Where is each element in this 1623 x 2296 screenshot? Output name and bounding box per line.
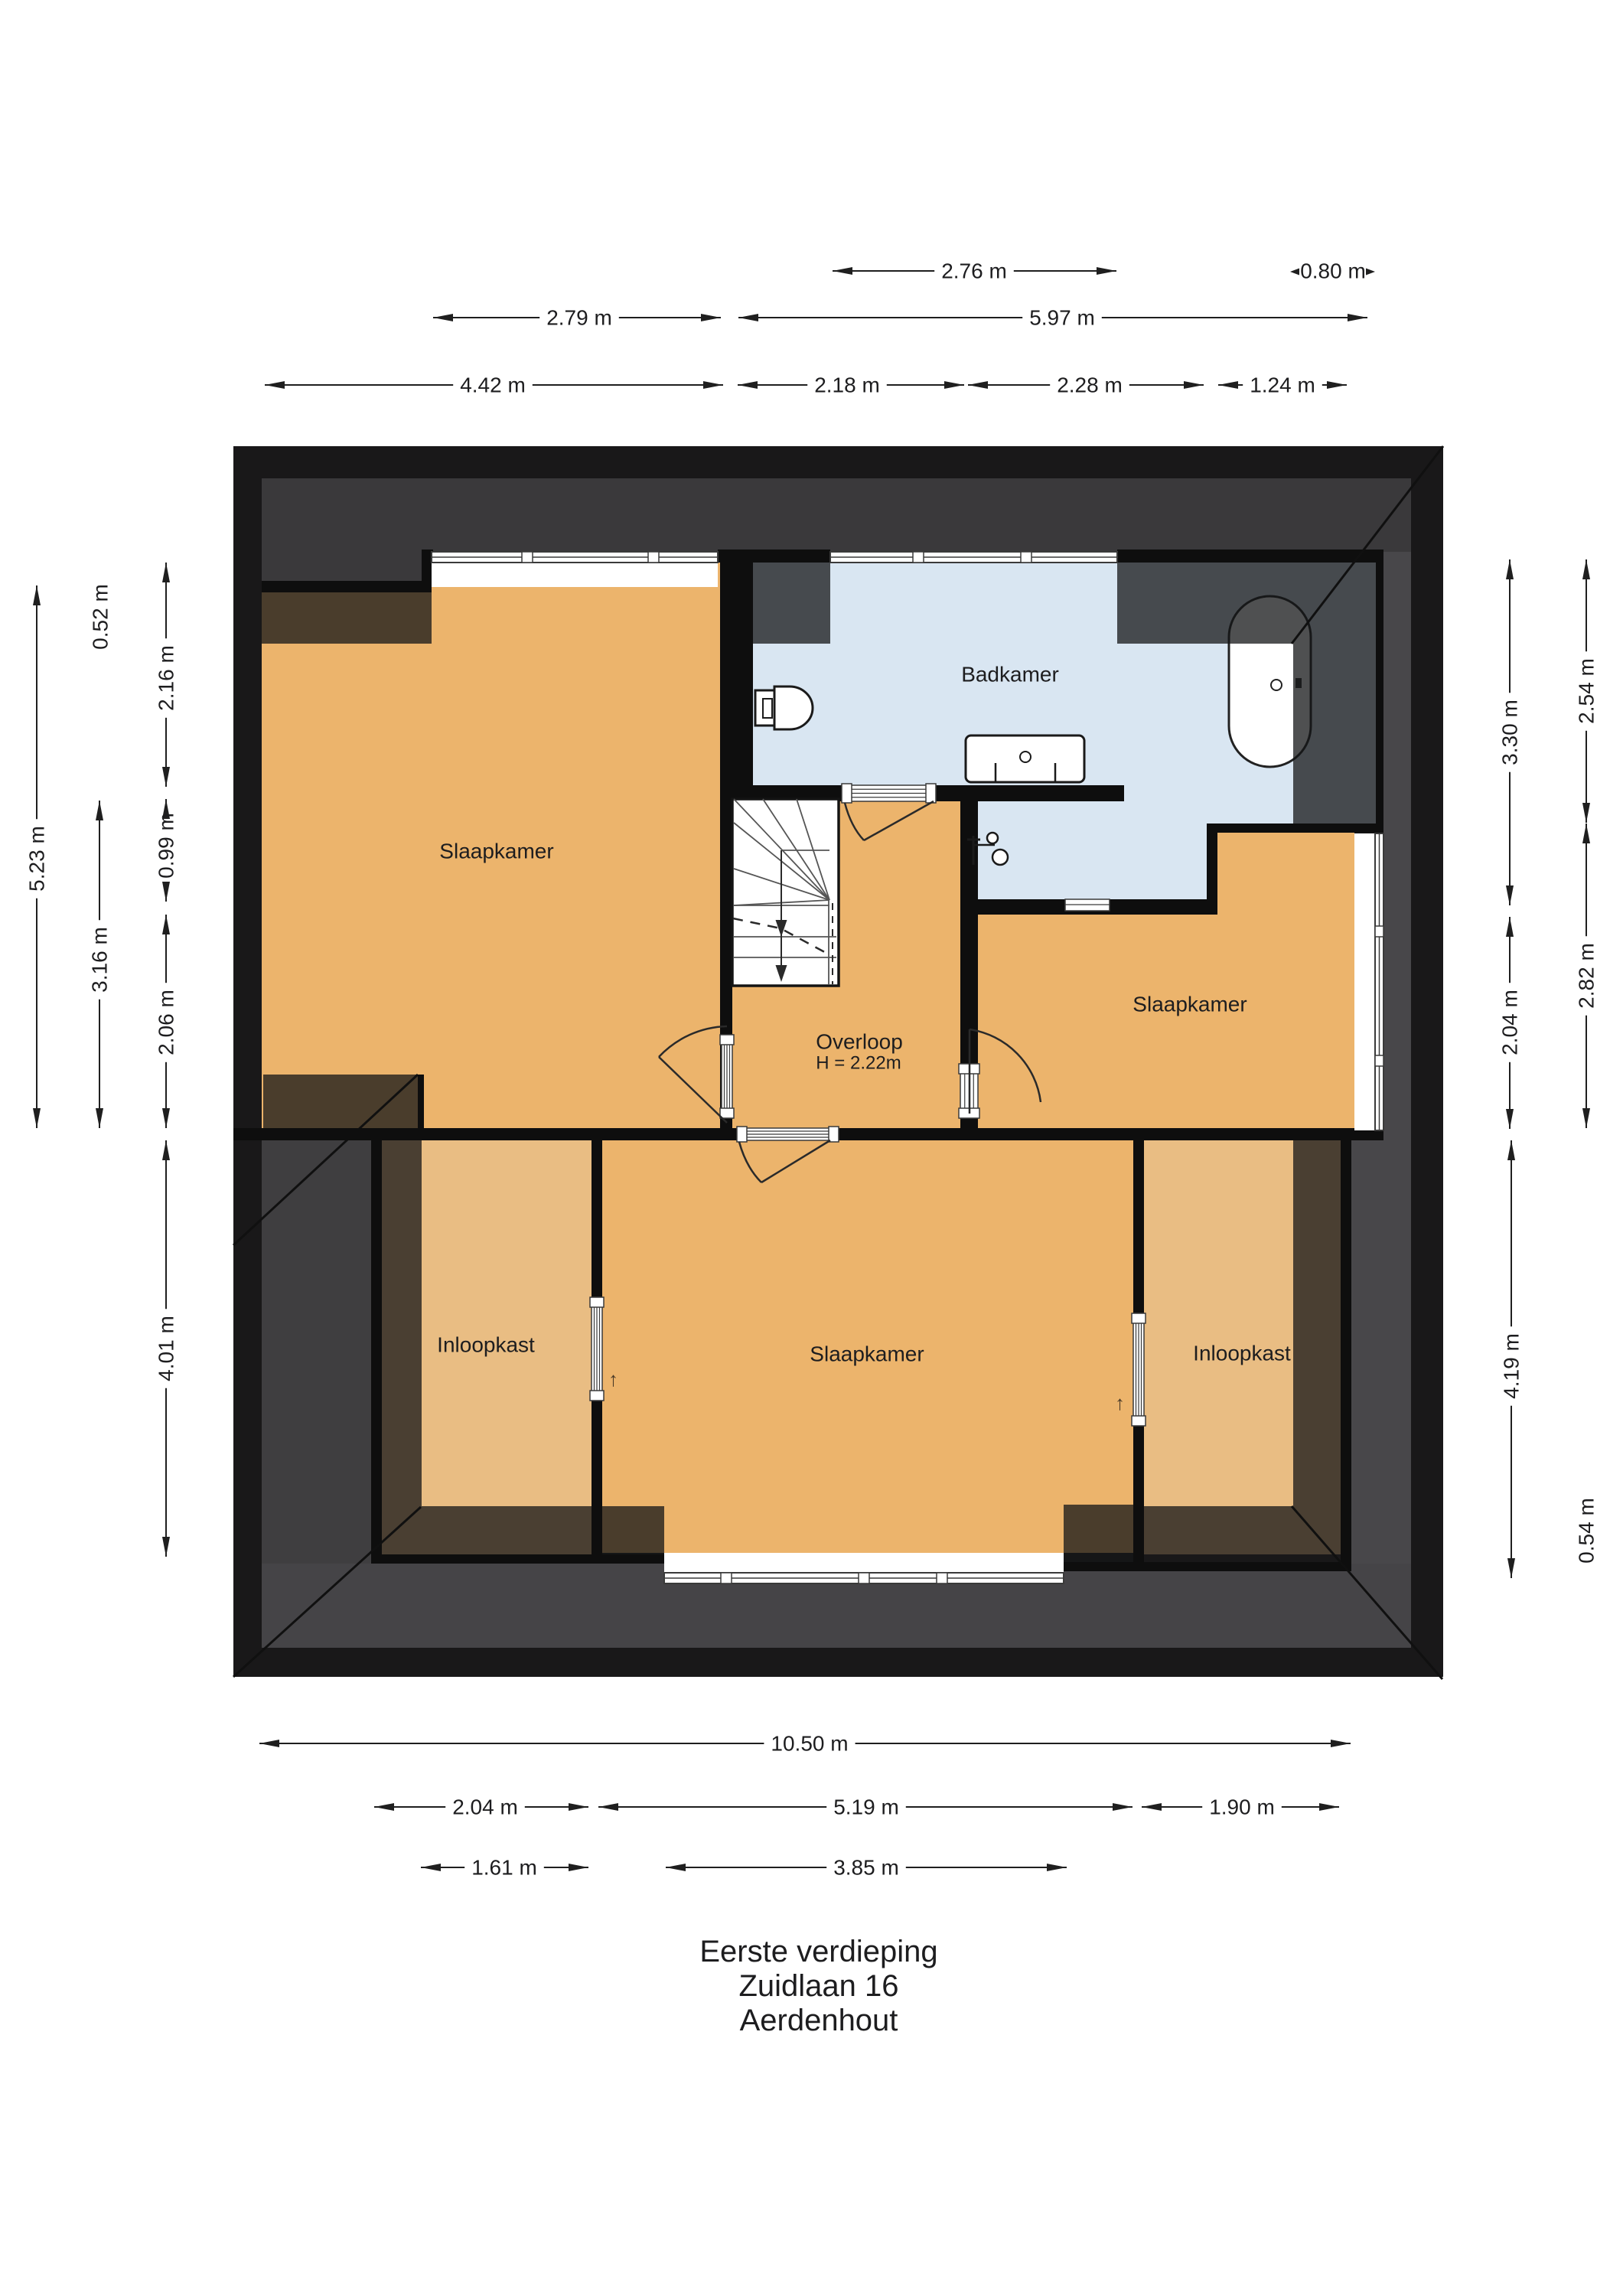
svg-text:4.19 m: 4.19 m <box>1500 1333 1524 1399</box>
svg-text:H = 2.22m: H = 2.22m <box>816 1053 901 1074</box>
svg-text:Slaapkamer: Slaapkamer <box>439 840 553 863</box>
svg-text:2.76 m: 2.76 m <box>941 259 1007 283</box>
svg-text:2.16 m: 2.16 m <box>155 645 178 711</box>
svg-text:1.61 m: 1.61 m <box>471 1856 537 1880</box>
svg-text:Inloopkast: Inloopkast <box>437 1333 535 1357</box>
svg-text:1.90 m: 1.90 m <box>1209 1795 1275 1819</box>
svg-text:0.80 m: 0.80 m <box>1300 259 1366 283</box>
svg-text:3.85 m: 3.85 m <box>833 1856 899 1880</box>
svg-text:Slaapkamer: Slaapkamer <box>1133 993 1247 1016</box>
svg-text:Zuidlaan 16: Zuidlaan 16 <box>738 1969 898 2003</box>
svg-text:2.04 m: 2.04 m <box>1498 990 1522 1055</box>
svg-text:2.06 m: 2.06 m <box>155 990 178 1055</box>
svg-text:2.82 m: 2.82 m <box>1575 943 1599 1009</box>
svg-text:5.23 m: 5.23 m <box>25 826 49 892</box>
svg-text:5.19 m: 5.19 m <box>833 1795 899 1819</box>
svg-text:1.24 m: 1.24 m <box>1250 373 1315 397</box>
svg-text:Slaapkamer: Slaapkamer <box>810 1342 924 1366</box>
svg-text:10.50 m: 10.50 m <box>771 1732 848 1756</box>
svg-text:2.28 m: 2.28 m <box>1057 373 1123 397</box>
svg-text:3.16 m: 3.16 m <box>88 927 112 993</box>
svg-text:↑: ↑ <box>608 1368 618 1391</box>
svg-text:Inloopkast: Inloopkast <box>1193 1342 1291 1365</box>
svg-text:↑: ↑ <box>1115 1391 1125 1414</box>
svg-text:4.42 m: 4.42 m <box>460 373 526 397</box>
svg-text:4.01 m: 4.01 m <box>155 1316 178 1381</box>
svg-text:Badkamer: Badkamer <box>961 663 1059 687</box>
svg-text:0.54 m: 0.54 m <box>1575 1498 1599 1564</box>
svg-text:2.79 m: 2.79 m <box>546 306 612 330</box>
svg-text:2.18 m: 2.18 m <box>814 373 880 397</box>
svg-text:0.99 m: 0.99 m <box>155 813 178 879</box>
svg-text:5.97 m: 5.97 m <box>1029 306 1095 330</box>
svg-text:2.54 m: 2.54 m <box>1575 658 1599 724</box>
svg-text:Eerste verdieping: Eerste verdieping <box>699 1935 937 1968</box>
svg-text:3.30 m: 3.30 m <box>1498 700 1522 765</box>
svg-text:Aerdenhout: Aerdenhout <box>740 2004 898 2037</box>
svg-text:Overloop: Overloop <box>816 1030 903 1054</box>
svg-text:2.04 m: 2.04 m <box>452 1795 518 1819</box>
svg-text:0.52 m: 0.52 m <box>89 584 112 650</box>
